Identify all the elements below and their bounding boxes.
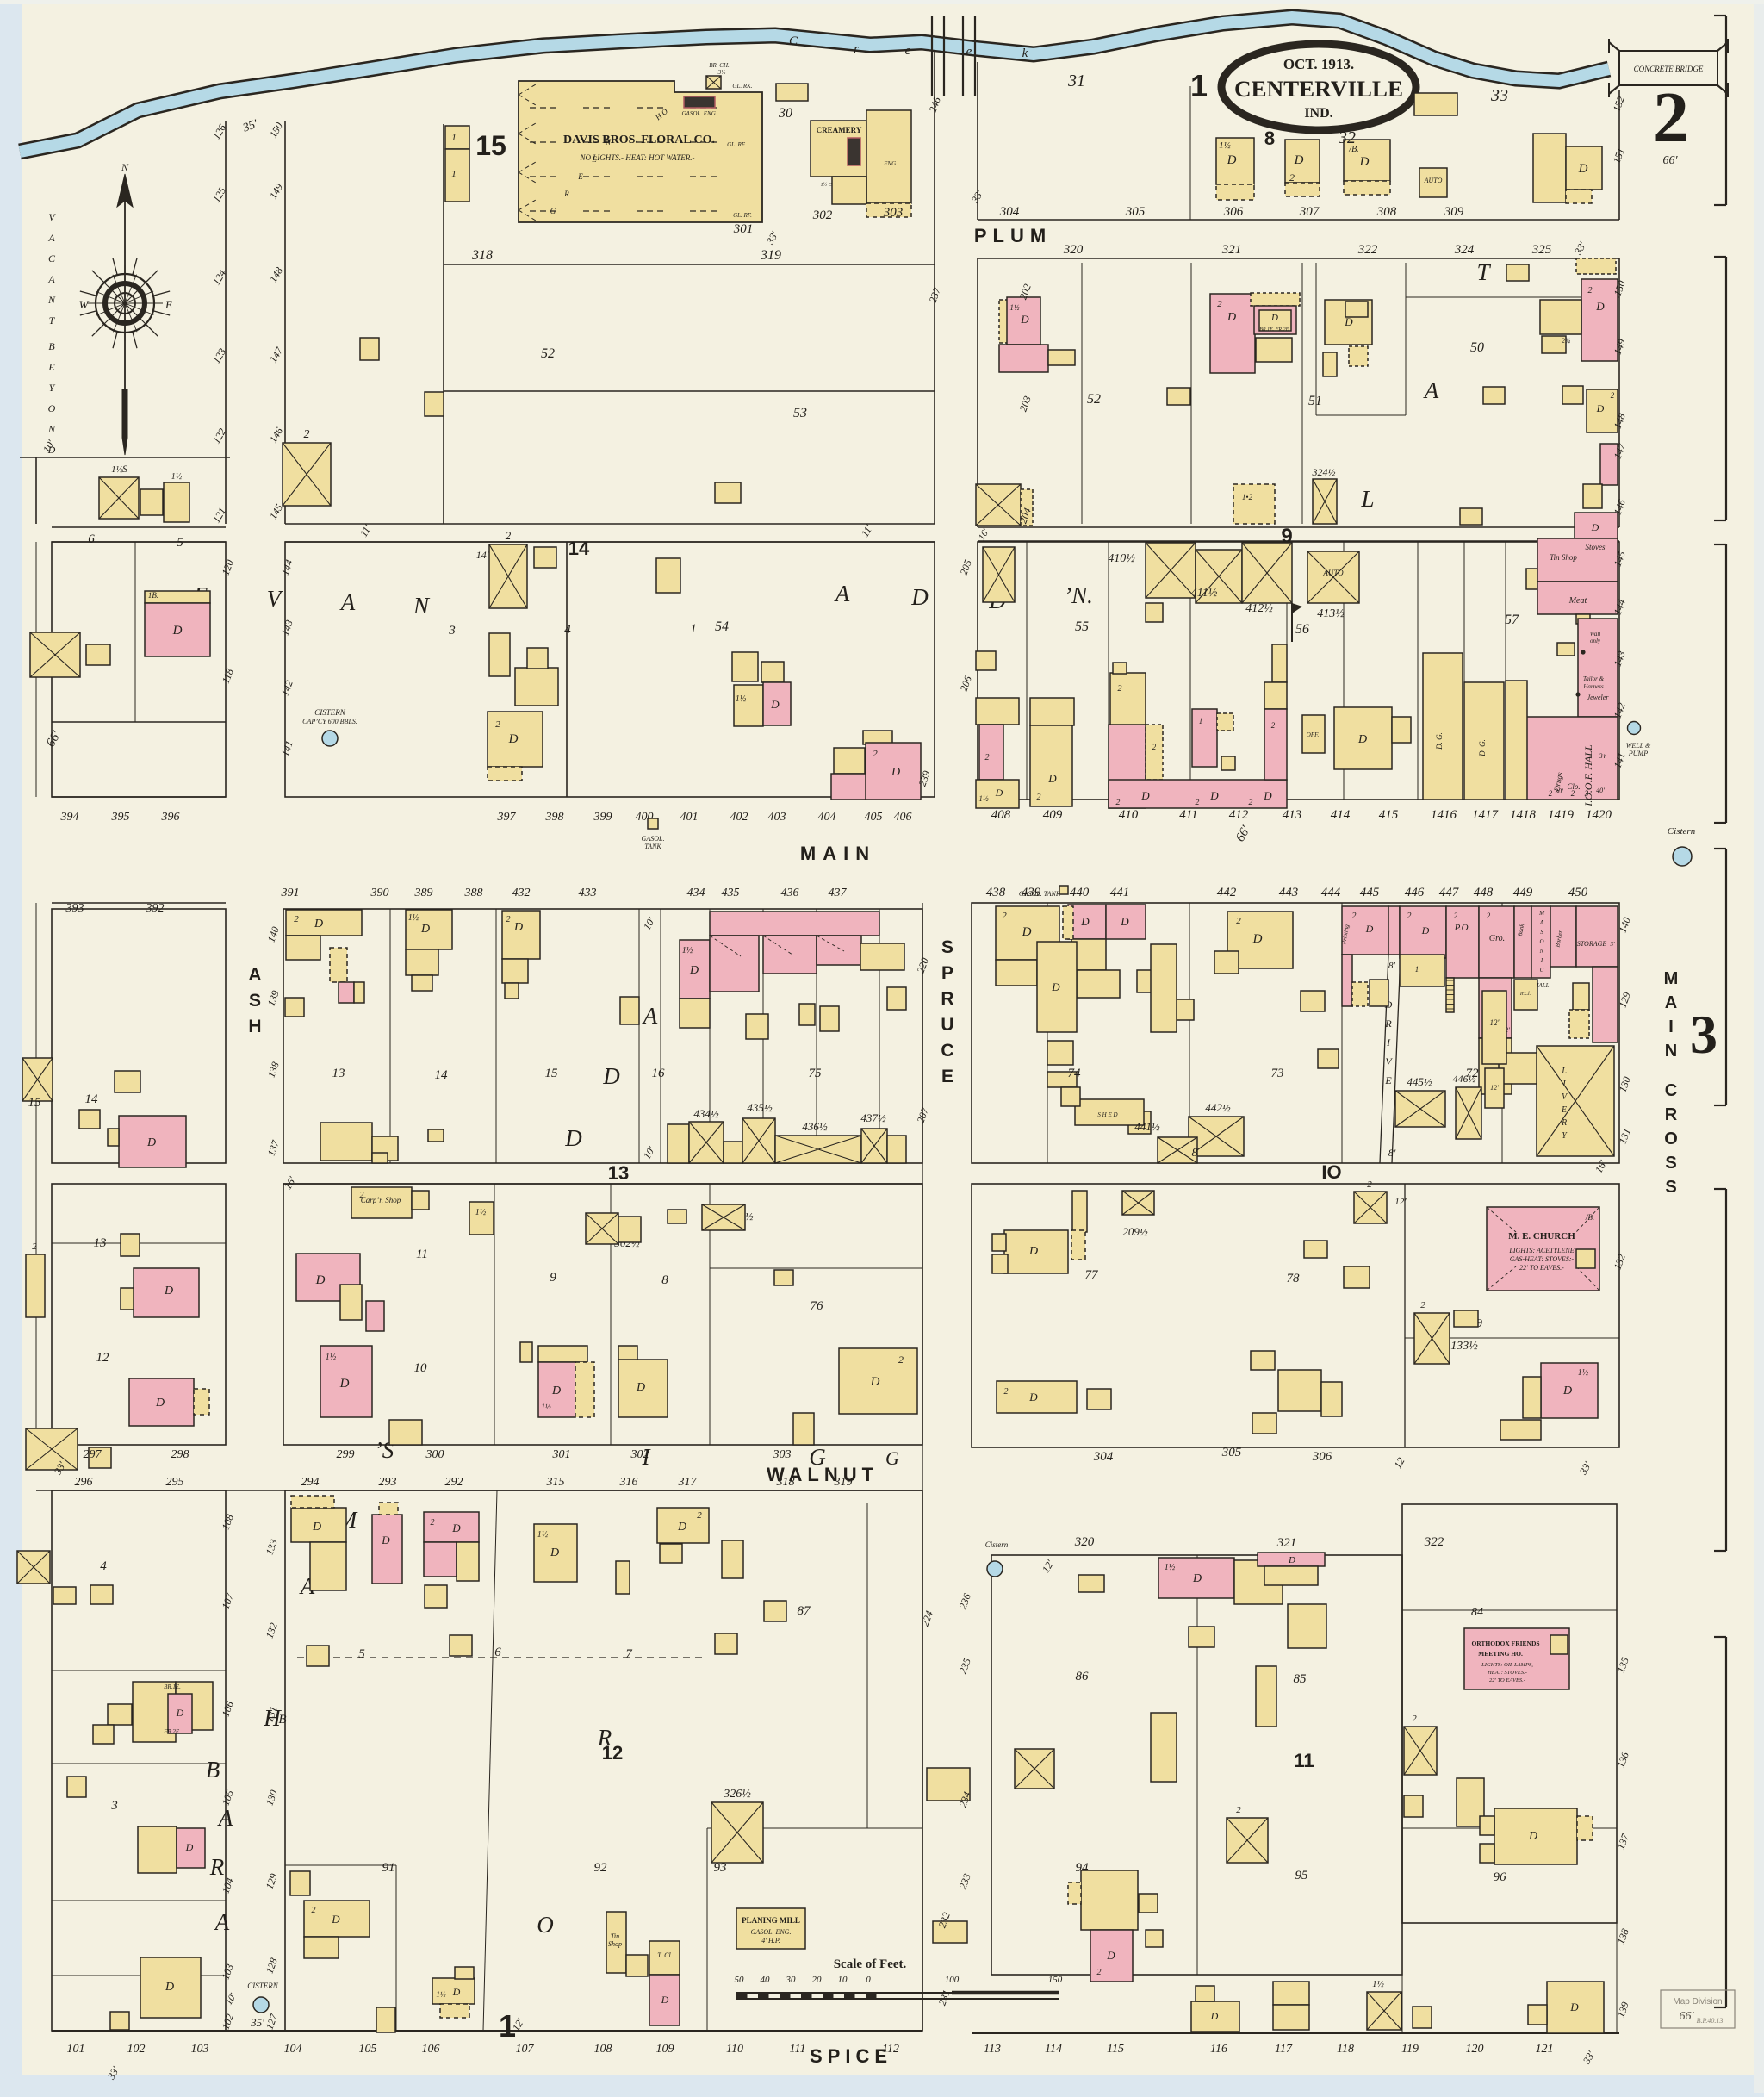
svg-text:D: D [513, 921, 523, 934]
svg-text:PLANING MILL: PLANING MILL [742, 1916, 800, 1925]
svg-text:10: 10 [414, 1361, 428, 1375]
svg-text:Meat: Meat [1568, 596, 1587, 606]
svg-text:15: 15 [545, 1067, 559, 1080]
svg-text:12′: 12′ [1394, 1197, 1407, 1207]
svg-text:301: 301 [733, 222, 754, 236]
svg-text:3′: 3′ [1609, 941, 1615, 948]
svg-text:320: 320 [1074, 1535, 1095, 1549]
svg-text:B: B [206, 1757, 220, 1783]
svg-text:13: 13 [332, 1067, 345, 1080]
svg-text:N: N [413, 593, 431, 619]
svg-text:N: N [47, 294, 56, 306]
svg-text:8: 8 [661, 1273, 668, 1287]
svg-text:Carp’r. Shop: Carp’r. Shop [361, 1196, 401, 1204]
svg-text:101: 101 [67, 2043, 85, 2056]
svg-text:1B.: 1B. [148, 591, 158, 600]
svg-text:3℩: 3℩ [1599, 752, 1606, 760]
svg-text:4: 4 [100, 1559, 107, 1573]
svg-text:294: 294 [301, 1476, 320, 1489]
svg-text:A: A [1423, 377, 1439, 403]
svg-text:D: D [1359, 155, 1370, 169]
svg-text:414: 414 [1331, 808, 1351, 822]
svg-text:CREAMERY: CREAMERY [817, 126, 862, 134]
svg-text:R: R [597, 1725, 612, 1751]
svg-text:293: 293 [379, 1476, 397, 1489]
svg-text:D: D [689, 964, 699, 977]
svg-text:413: 413 [1283, 808, 1302, 822]
svg-text:Tin: Tin [611, 1932, 619, 1940]
svg-text:317: 317 [678, 1476, 698, 1489]
svg-text:32: 32 [1338, 128, 1356, 147]
svg-text:438: 438 [986, 886, 1006, 899]
svg-text:D: D [146, 1136, 156, 1149]
svg-text:Tailor &: Tailor & [1583, 675, 1605, 682]
svg-text:299: 299 [337, 1448, 355, 1461]
svg-text:S: S [122, 463, 127, 475]
svg-text:397: 397 [497, 811, 517, 824]
svg-text:only: only [1590, 638, 1601, 644]
svg-text:D: D [1596, 402, 1605, 414]
svg-text:120: 120 [1466, 2043, 1484, 2056]
svg-text:D: D [1595, 300, 1605, 313]
svg-text:2: 2 [1152, 743, 1157, 751]
svg-text:411½: 411½ [1191, 587, 1218, 600]
svg-text:D: D [155, 1397, 165, 1409]
svg-text:4′ H.P.: 4′ H.P. [761, 1937, 780, 1945]
svg-text:75: 75 [809, 1067, 823, 1080]
svg-text:S: S [1665, 1154, 1676, 1173]
svg-text:E: E [47, 361, 55, 373]
svg-text:GAS-HEAT: STOVES:-: GAS-HEAT: STOVES:- [1510, 1255, 1575, 1263]
svg-text:309: 309 [1444, 205, 1464, 219]
svg-text:e: e [966, 45, 972, 59]
svg-text:76: 76 [811, 1299, 824, 1313]
svg-text:D: D [451, 1521, 461, 1534]
svg-text:1417: 1417 [1472, 808, 1500, 822]
svg-text:M. E. CHURCH: M. E. CHURCH [1508, 1231, 1575, 1241]
svg-text:437: 437 [829, 887, 848, 899]
svg-text:O: O [1664, 1129, 1678, 1148]
svg-text:A: A [834, 581, 850, 607]
svg-text:1½: 1½ [475, 1208, 487, 1217]
svg-text:D: D [1578, 162, 1588, 176]
svg-text:AUTO: AUTO [1322, 569, 1344, 577]
svg-text:3: 3 [448, 624, 456, 638]
svg-text:12′: 12′ [1490, 1084, 1499, 1092]
svg-text:D: D [314, 918, 323, 930]
svg-text:D: D [1562, 1385, 1572, 1397]
svg-text:D: D [1357, 733, 1367, 746]
svg-text:4: 4 [564, 623, 571, 637]
svg-text:D: D [891, 766, 900, 779]
svg-text:395: 395 [111, 811, 130, 824]
svg-text:392: 392 [146, 902, 165, 915]
svg-text:Jeweler: Jeweler [1587, 694, 1610, 701]
svg-text:D: D [1210, 2010, 1219, 2022]
svg-text:435½: 435½ [747, 1101, 773, 1114]
svg-text:3: 3 [1690, 1004, 1717, 1065]
svg-text:D: D [1080, 915, 1090, 928]
svg-text:CAP’CY 600 BBLS.: CAP’CY 600 BBLS. [302, 718, 357, 725]
svg-text:W: W [79, 298, 90, 311]
svg-text:440: 440 [1070, 886, 1090, 899]
svg-text:2: 2 [1549, 789, 1553, 798]
svg-text:OFF.: OFF. [1307, 731, 1320, 738]
svg-text:30: 30 [778, 106, 792, 121]
svg-text:16: 16 [652, 1067, 666, 1080]
svg-text:292: 292 [445, 1476, 463, 1489]
svg-text:22′ TO EAVES.-: 22′ TO EAVES.- [1519, 1264, 1564, 1272]
svg-text:G: G [809, 1444, 826, 1470]
svg-text:D: D [1263, 789, 1272, 802]
svg-text:1420: 1420 [1586, 808, 1612, 822]
svg-text:Shop: Shop [608, 1940, 622, 1948]
svg-text:450: 450 [1568, 886, 1588, 899]
svg-text:40: 40 [761, 1975, 771, 1985]
svg-text:1½: 1½ [1578, 1368, 1589, 1378]
svg-text:IO: IO [1321, 1161, 1341, 1183]
svg-text:434: 434 [687, 887, 705, 899]
svg-text:84: 84 [1471, 1606, 1483, 1619]
svg-text:D: D [602, 1063, 620, 1089]
svg-text:92: 92 [594, 1861, 608, 1875]
svg-text:305: 305 [1221, 1446, 1242, 1459]
svg-text:405: 405 [865, 811, 883, 824]
svg-text:402: 402 [730, 811, 748, 824]
svg-text:ORTHODOX FRIENDS: ORTHODOX FRIENDS [1471, 1640, 1539, 1647]
svg-text:G: G [550, 207, 556, 215]
svg-text:CISTERN: CISTERN [314, 708, 346, 717]
svg-text:D: D [1528, 1830, 1537, 1843]
svg-text:BR.1E.: BR.1E. [164, 1683, 181, 1690]
svg-text:115: 115 [1107, 2043, 1124, 2056]
svg-text:2: 2 [1236, 1805, 1241, 1815]
svg-text:C: C [1665, 1081, 1677, 1100]
svg-text:118: 118 [1337, 2043, 1354, 2056]
svg-text:13: 13 [94, 1236, 107, 1250]
svg-text:2: 2 [1412, 1714, 1417, 1724]
svg-text:1: 1 [451, 133, 457, 143]
svg-text:D: D [551, 1385, 561, 1397]
svg-text:447: 447 [1439, 886, 1460, 899]
svg-text:96: 96 [1494, 1870, 1507, 1884]
svg-text:95: 95 [1295, 1869, 1309, 1882]
svg-text:ENG.: ENG. [883, 160, 898, 167]
svg-text:S: S [1540, 929, 1543, 936]
svg-text:403: 403 [768, 811, 786, 824]
svg-text:12′: 12′ [1490, 1018, 1500, 1027]
svg-text:3½: 3½ [717, 69, 727, 76]
svg-text:Map Division: Map Division [1673, 1997, 1722, 2007]
svg-text:54: 54 [715, 619, 729, 634]
svg-text:319: 319 [834, 1476, 853, 1489]
svg-text:404: 404 [818, 811, 836, 824]
svg-text:316: 316 [619, 1476, 638, 1489]
svg-text:2: 2 [506, 915, 511, 924]
svg-text:109: 109 [656, 2043, 674, 2056]
svg-text:388: 388 [464, 887, 483, 899]
svg-text:D: D [1227, 153, 1237, 167]
svg-text:412½: 412½ [1245, 602, 1273, 615]
svg-text:93: 93 [714, 1861, 727, 1875]
svg-text:2: 2 [431, 1518, 435, 1528]
svg-text:77: 77 [1085, 1268, 1100, 1282]
svg-text:30′: 30′ [1554, 787, 1563, 795]
svg-text:394: 394 [60, 811, 79, 824]
svg-text:HEAT: STOVES.-: HEAT: STOVES.- [1487, 1670, 1527, 1676]
svg-text:8′: 8′ [1388, 961, 1396, 971]
svg-text:WELL &: WELL & [1626, 742, 1651, 750]
svg-text:D: D [381, 1534, 390, 1546]
svg-text:D: D [550, 1546, 559, 1559]
svg-text:2: 2 [360, 1191, 364, 1200]
svg-text:35′: 35′ [250, 2016, 264, 2029]
svg-text:D: D [1252, 932, 1263, 946]
svg-text:Tin Shop: Tin Shop [1550, 553, 1577, 562]
svg-text:2: 2 [32, 1241, 37, 1252]
svg-text:308: 308 [1376, 205, 1397, 219]
svg-text:B: B [278, 1713, 286, 1727]
svg-text:117: 117 [1275, 2043, 1293, 2056]
svg-text:446: 446 [1405, 886, 1425, 899]
svg-text:D: D [1270, 313, 1278, 323]
svg-text:2: 2 [1236, 916, 1241, 926]
svg-text:B.P.40.13: B.P.40.13 [1697, 2017, 1724, 2025]
svg-text:2: 2 [873, 749, 878, 759]
svg-text:301: 301 [552, 1448, 571, 1461]
svg-text:GL. RF.: GL. RF. [727, 141, 746, 148]
svg-text:8′: 8′ [1388, 1147, 1396, 1159]
svg-text:2: 2 [1217, 299, 1222, 309]
svg-text:D: D [1209, 789, 1219, 802]
svg-text:2: 2 [1487, 912, 1491, 920]
svg-text:SPICE: SPICE [810, 2045, 892, 2067]
svg-text:C: C [1540, 967, 1544, 974]
svg-text:51: 51 [1308, 394, 1322, 408]
svg-text:GASOL. ENG.: GASOL. ENG. [751, 1928, 792, 1936]
svg-text:A: A [1665, 993, 1677, 1012]
svg-text:R: R [563, 190, 569, 198]
svg-text:MAIN: MAIN [800, 843, 876, 864]
svg-text:408: 408 [991, 808, 1011, 822]
svg-text:57: 57 [1505, 613, 1519, 627]
svg-text:87: 87 [798, 1604, 812, 1618]
svg-text:D: D [1140, 789, 1150, 802]
svg-text:3: 3 [1584, 789, 1589, 798]
svg-text:307: 307 [1299, 205, 1320, 219]
svg-text:103: 103 [191, 2043, 209, 2056]
svg-text:2: 2 [1611, 391, 1615, 400]
svg-text:E: E [1561, 1105, 1567, 1115]
svg-text:D: D [1421, 924, 1430, 936]
svg-text:116: 116 [1210, 2043, 1227, 2056]
svg-text:437½: 437½ [860, 1111, 886, 1124]
svg-text:102: 102 [127, 2043, 146, 2056]
svg-text:S: S [941, 937, 953, 957]
svg-text:D: D [661, 1994, 669, 2006]
svg-text:D: D [636, 1381, 645, 1394]
svg-text:D: D [1028, 1245, 1038, 1258]
svg-text:411: 411 [1179, 808, 1197, 822]
svg-text:391: 391 [281, 887, 300, 899]
svg-text:1½: 1½ [736, 694, 747, 704]
svg-text:50: 50 [1470, 340, 1484, 355]
svg-text:296: 296 [75, 1476, 93, 1489]
svg-text:O: O [48, 402, 56, 414]
svg-text:2: 2 [1196, 798, 1200, 807]
svg-text:50: 50 [735, 1975, 745, 1985]
svg-text:R: R [1665, 1105, 1678, 1124]
svg-text:441: 441 [1110, 886, 1130, 899]
svg-text:N: N [121, 161, 129, 173]
svg-text:11: 11 [416, 1248, 428, 1261]
svg-text:3: 3 [110, 1799, 118, 1813]
svg-text:324: 324 [1454, 243, 1475, 257]
svg-text:BR. CH.: BR. CH. [709, 62, 730, 69]
svg-text:78: 78 [1287, 1272, 1301, 1285]
svg-text:1•2: 1•2 [1242, 493, 1253, 501]
svg-text:105: 105 [359, 2043, 377, 2056]
svg-text:442½: 442½ [1205, 1101, 1231, 1114]
svg-text:72: 72 [1466, 1067, 1480, 1080]
svg-text:A: A [248, 965, 261, 985]
svg-text:D: D [452, 1986, 461, 1998]
svg-text:448: 448 [1474, 886, 1494, 899]
svg-text:D: D [165, 1981, 174, 1994]
svg-text:D: D [164, 1285, 173, 1297]
svg-text:415: 415 [1379, 808, 1399, 822]
svg-text:D: D [770, 698, 780, 711]
svg-text:D: D [1192, 1572, 1202, 1585]
svg-text:LIGHTS: ACETYLENE: LIGHTS: ACETYLENE [1508, 1247, 1574, 1254]
svg-text:Harness: Harness [1582, 683, 1604, 690]
svg-text:444: 444 [1321, 886, 1341, 899]
svg-text:T: T [1476, 259, 1491, 285]
svg-text:104: 104 [284, 2043, 302, 2056]
svg-text:2: 2 [1004, 1387, 1009, 1397]
svg-text:20: 20 [812, 1975, 823, 1985]
svg-text:11: 11 [1294, 1750, 1314, 1771]
svg-text:S: S [1665, 1178, 1676, 1197]
svg-text:2: 2 [294, 914, 299, 924]
svg-text:BR.1E. FR.2E.: BR.1E. FR.2E. [1259, 327, 1290, 333]
svg-text:306: 306 [1312, 1450, 1332, 1464]
svg-text:14: 14 [85, 1092, 99, 1106]
svg-text:14′: 14′ [476, 549, 489, 561]
svg-text:2: 2 [1588, 286, 1593, 296]
svg-text:B: B [48, 340, 55, 352]
svg-text:436½: 436½ [802, 1120, 828, 1133]
svg-text:R: R [209, 1854, 225, 1880]
svg-text:106: 106 [422, 2043, 440, 2056]
svg-text:G: G [885, 1447, 899, 1469]
svg-text:AUTO: AUTO [1424, 177, 1443, 184]
svg-text:318: 318 [471, 248, 493, 263]
svg-text:119: 119 [1401, 2043, 1419, 2056]
svg-text:14: 14 [568, 538, 590, 559]
svg-text:389: 389 [414, 887, 433, 899]
svg-text:D: D [1020, 313, 1029, 326]
svg-text:409: 409 [1043, 808, 1063, 822]
svg-text:D: D [315, 1273, 326, 1287]
svg-text:E: E [165, 298, 172, 311]
svg-text:321: 321 [1221, 243, 1242, 257]
svg-text:398: 398 [545, 811, 564, 824]
svg-text:315: 315 [546, 1476, 565, 1489]
svg-text:D: D [1022, 925, 1032, 939]
svg-text:Stoves: Stoves [1586, 543, 1606, 551]
svg-text:O: O [1539, 938, 1543, 945]
svg-text:303: 303 [883, 206, 904, 220]
svg-text:91: 91 [382, 1861, 395, 1875]
svg-text:0: 0 [866, 1975, 871, 1985]
svg-text:LIGHTS: OIL LAMPS,: LIGHTS: OIL LAMPS, [1481, 1662, 1533, 1668]
svg-text:303: 303 [773, 1448, 792, 1461]
svg-text:8: 8 [1264, 128, 1275, 149]
svg-text:445: 445 [1360, 886, 1380, 899]
svg-text:D: D [185, 1841, 194, 1853]
svg-text:433: 433 [579, 887, 597, 899]
svg-text:2: 2 [1249, 798, 1253, 807]
svg-text:56: 56 [1295, 622, 1309, 637]
svg-text:413½: 413½ [1317, 607, 1345, 620]
svg-text:110: 110 [726, 2043, 743, 2056]
svg-text:319: 319 [760, 248, 781, 263]
svg-text:1416: 1416 [1431, 808, 1457, 822]
svg-text:IND.: IND. [1304, 106, 1332, 121]
svg-text:A: A [214, 1909, 230, 1935]
svg-text:GASOL. TANK: GASOL. TANK [1019, 890, 1061, 898]
svg-text:MEETING HO.: MEETING HO. [1478, 1650, 1523, 1658]
svg-text:406: 406 [894, 811, 912, 824]
svg-text:1418: 1418 [1510, 808, 1537, 822]
svg-text:399: 399 [593, 811, 612, 824]
svg-text:D: D [1047, 772, 1057, 785]
svg-text:D. G.: D. G. [1478, 739, 1487, 757]
svg-text:STORAGE: STORAGE [1577, 940, 1607, 948]
svg-text:D: D [995, 787, 1003, 799]
svg-text:2: 2 [1407, 912, 1412, 921]
svg-text:324½: 324½ [1312, 466, 1336, 478]
svg-text:8: 8 [1192, 1147, 1198, 1160]
svg-text:121: 121 [1536, 2043, 1554, 2056]
svg-text:’N.: ’N. [1064, 582, 1093, 608]
svg-text:E: E [577, 172, 583, 181]
svg-text:5: 5 [177, 536, 183, 550]
svg-text:33: 33 [1490, 86, 1508, 105]
svg-text:436: 436 [781, 887, 799, 899]
svg-text:CISTERN: CISTERN [247, 1982, 279, 1990]
svg-text:1½: 1½ [326, 1353, 337, 1362]
svg-text:CONCRETE BRIDGE: CONCRETE BRIDGE [1634, 65, 1704, 73]
svg-text:S: S [249, 991, 261, 1011]
svg-text:D: D [176, 1707, 184, 1719]
svg-text:1½: 1½ [1219, 140, 1231, 151]
svg-text:TANK: TANK [644, 843, 661, 850]
svg-text:9: 9 [550, 1271, 556, 1285]
svg-text:2: 2 [1271, 721, 1276, 730]
svg-text:R: R [1561, 1118, 1567, 1128]
svg-text:Wall: Wall [1590, 631, 1601, 638]
svg-text:1½: 1½ [408, 913, 419, 923]
svg-text:2: 2 [1653, 78, 1689, 158]
svg-text:r: r [854, 42, 859, 56]
svg-text:1: 1 [690, 622, 697, 636]
svg-text:GASOL.: GASOL. [642, 835, 665, 843]
svg-text:12: 12 [96, 1351, 110, 1365]
svg-text:410½: 410½ [1108, 552, 1135, 565]
svg-text:I: I [1562, 1080, 1566, 1089]
